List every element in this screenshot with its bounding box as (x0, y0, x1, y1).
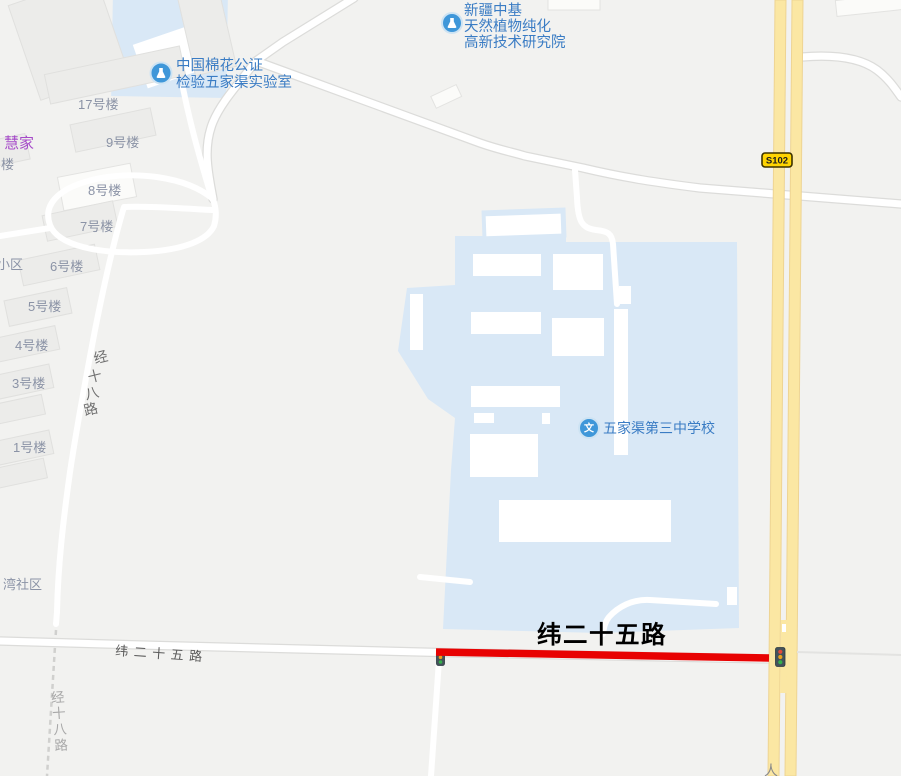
highlighted-road-name: 纬二十五路 (537, 620, 667, 649)
flask-icon (151, 63, 172, 84)
traffic-light-icon (776, 648, 786, 667)
building (474, 413, 494, 423)
building-label-partial: 楼 (1, 157, 14, 172)
green-light (439, 660, 443, 664)
building (552, 318, 604, 356)
building-label: 9号楼 (106, 135, 139, 150)
brand-label[interactable]: 慧家 (4, 135, 34, 152)
building (619, 286, 631, 304)
building-label: 7号楼 (80, 219, 113, 234)
area-label: 湾社区 (3, 577, 42, 592)
road-label-char: 经 (51, 690, 66, 706)
building (473, 254, 541, 276)
building (410, 294, 423, 350)
building-label: 17号楼 (78, 97, 118, 112)
yellow-light (778, 655, 782, 659)
map-viewport[interactable]: S102 新疆中基 天然植物纯化 高新技术研究院 中国棉花公证 检验五家渠实验室… (0, 0, 901, 776)
building-label: 8号楼 (88, 183, 121, 198)
yellow-light (439, 656, 443, 660)
building (542, 413, 550, 424)
building (727, 587, 737, 605)
map-canvas[interactable]: S102 新疆中基 天然植物纯化 高新技术研究院 中国棉花公证 检验五家渠实验室… (0, 0, 901, 776)
building (548, 0, 600, 10)
median-mark (782, 624, 786, 632)
poi-label[interactable]: 天然植物纯化 (464, 18, 551, 35)
flask-icon (442, 13, 462, 33)
building (486, 214, 562, 237)
building (553, 254, 603, 290)
poi-label[interactable]: 检验五家渠实验室 (176, 74, 292, 91)
road-label-char: 十 (52, 706, 67, 722)
poi-label[interactable]: 新疆中基 (464, 2, 522, 19)
road-label-char: 八 (53, 721, 68, 737)
building-label: 5号楼 (28, 299, 61, 314)
building (470, 434, 538, 477)
building (499, 500, 671, 542)
school-icon-glyph: 文 (584, 422, 595, 435)
building (471, 312, 541, 334)
poi-label[interactable]: 中国棉花公证 (176, 57, 263, 74)
building-label: 6号楼 (50, 259, 83, 274)
s102-badge: S102 (762, 153, 792, 167)
building-label: 3号楼 (12, 376, 45, 391)
s102-badge-label: S102 (766, 156, 788, 167)
road-label-partial: 人 (764, 763, 778, 776)
school-icon: 文 (579, 418, 599, 438)
building-label: 4号楼 (15, 338, 48, 353)
red-light (778, 650, 782, 654)
poi-label[interactable]: 高新技术研究院 (464, 34, 566, 51)
building-label: 1号楼 (13, 440, 46, 455)
building (471, 386, 560, 407)
area-label-partial: 小区 (0, 257, 23, 272)
poi-label[interactable]: 五家渠第三中学校 (603, 420, 715, 436)
road-label-char: 路 (54, 737, 69, 753)
green-light (778, 660, 782, 664)
